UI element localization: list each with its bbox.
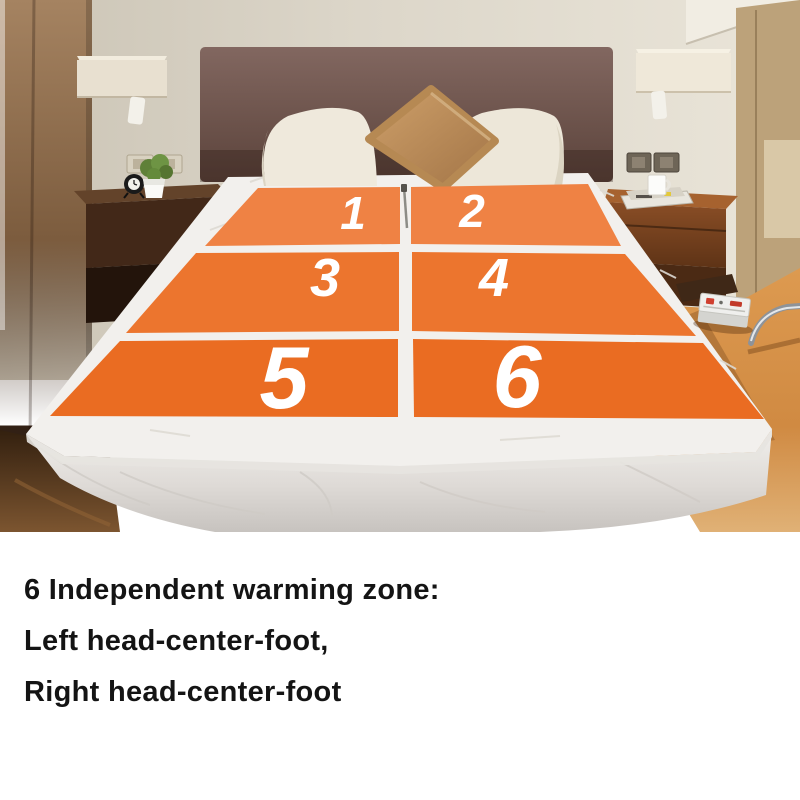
zone-number-6: 6 bbox=[493, 327, 543, 426]
product-image: 1 2 3 4 5 6 6 Independent warming zone: … bbox=[0, 0, 800, 800]
zone-number-2: 2 bbox=[458, 185, 485, 237]
caption-line-1: 6 Independent warming zone: bbox=[24, 574, 440, 607]
wardrobe-right bbox=[736, 0, 800, 320]
caption-line-3: Right head-center-foot bbox=[24, 676, 342, 709]
caption-line-2: Left head-center-foot, bbox=[24, 625, 329, 658]
zone-number-1: 1 bbox=[340, 187, 366, 239]
zone-number-5: 5 bbox=[260, 328, 310, 427]
bedroom-photo: 1 2 3 4 5 6 bbox=[0, 0, 800, 532]
coffee-mug bbox=[648, 175, 670, 195]
zone-number-4: 4 bbox=[478, 248, 509, 308]
zone-number-3: 3 bbox=[310, 248, 340, 308]
warming-zone-2 bbox=[411, 184, 621, 246]
